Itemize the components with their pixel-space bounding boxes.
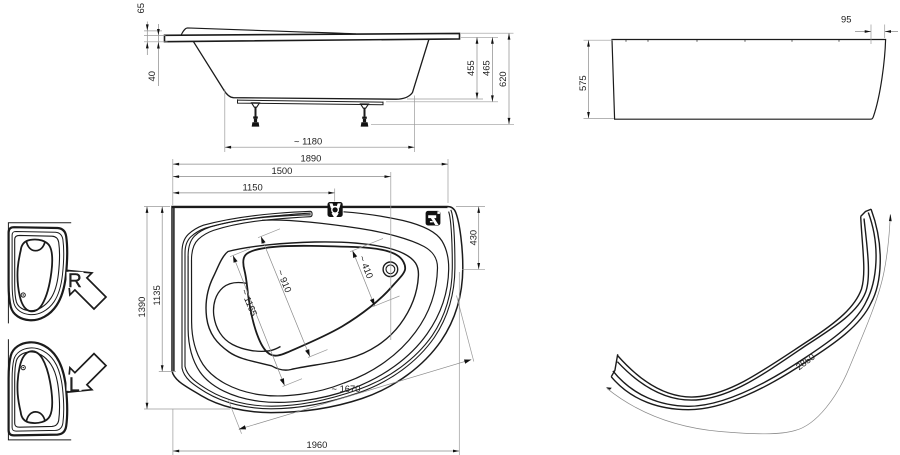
svg-text:430: 430 [467, 230, 478, 246]
svg-text:465: 465 [480, 60, 491, 76]
svg-text:1390: 1390 [136, 297, 147, 318]
svg-text:1890: 1890 [301, 153, 322, 164]
svg-text:1135: 1135 [151, 285, 162, 305]
svg-text:1150: 1150 [243, 182, 263, 193]
svg-text:1500: 1500 [272, 165, 293, 176]
svg-text:95: 95 [841, 14, 851, 25]
svg-text:455: 455 [465, 60, 476, 76]
svg-text:1960: 1960 [307, 439, 328, 450]
svg-text:620: 620 [497, 71, 508, 87]
svg-text:~ 1670: ~ 1670 [332, 383, 361, 394]
svg-text:40: 40 [146, 71, 157, 81]
svg-text:~ 1180: ~ 1180 [294, 136, 322, 147]
svg-text:65: 65 [135, 3, 146, 13]
svg-text:575: 575 [577, 75, 588, 91]
svg-text:L: L [69, 375, 80, 396]
svg-text:R: R [68, 271, 82, 292]
